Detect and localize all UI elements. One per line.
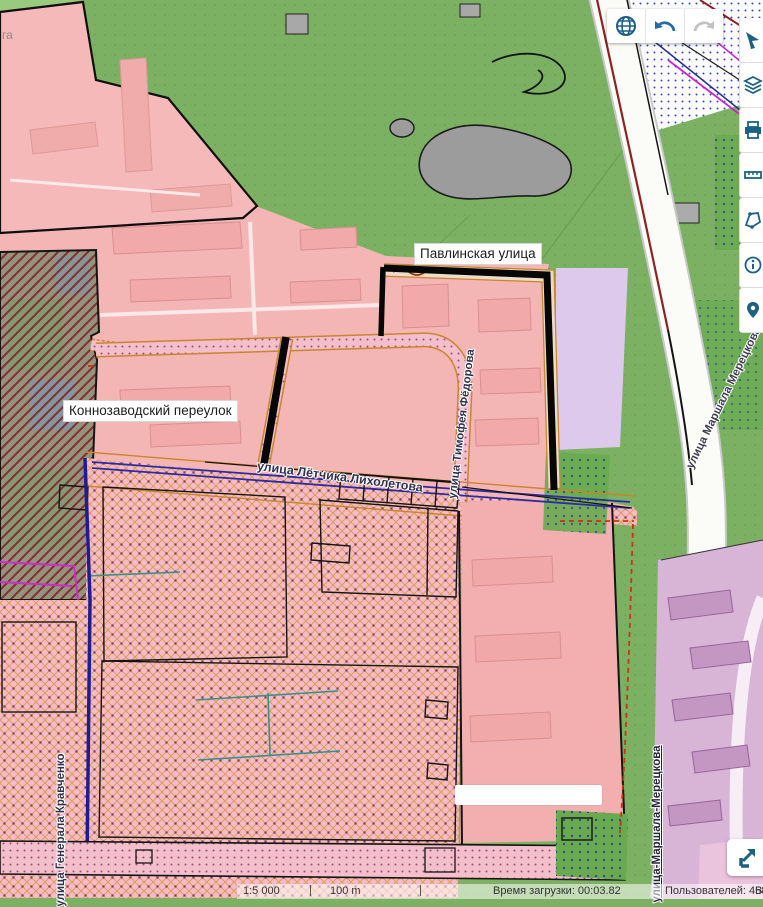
undo-icon — [652, 15, 678, 37]
tools-sidebar — [739, 18, 763, 333]
status-bar: 1:5 000 100 m Время загрузки: 00:03.82 П… — [237, 884, 763, 899]
globe-icon — [614, 14, 638, 38]
scale-bar-distance: 100 m — [330, 885, 361, 897]
app-root: { "map": { "labels": { "pavlinskaya": "П… — [0, 0, 763, 899]
map-toolbar — [607, 9, 723, 43]
cursor-arrow-icon — [743, 30, 763, 50]
undo-button[interactable] — [645, 9, 684, 43]
redo-button[interactable] — [684, 9, 723, 43]
status-fragment: В — [755, 885, 762, 897]
map-scale: 1:5 000 — [243, 885, 280, 897]
map-svg — [0, 0, 763, 899]
label-pavlinskaya-street: Павлинская улица — [414, 243, 542, 265]
street-name-fragment: га — [2, 28, 13, 42]
fullscreen-button[interactable] — [727, 839, 763, 876]
ruler-tool-button[interactable] — [739, 153, 763, 198]
redo-icon — [691, 15, 717, 37]
layers-icon — [743, 75, 763, 95]
marker-tool-button[interactable] — [739, 288, 763, 333]
draw-tool-button[interactable] — [739, 198, 763, 243]
marker-icon — [743, 300, 763, 320]
street-name-meretskova-bottom: улица-Маршала-Мерецкова — [651, 745, 663, 902]
users-count: Пользователей: 4584 — [665, 885, 763, 897]
expand-icon — [733, 845, 759, 871]
print-icon — [743, 120, 763, 140]
globe-button[interactable] — [607, 9, 645, 43]
street-name-kravchenko: улица Генерала Кравченко — [55, 753, 67, 906]
scale-bar-tick — [420, 885, 421, 896]
map-canvas[interactable] — [0, 0, 763, 899]
load-time: Время загрузки: 00:03.82 — [493, 885, 621, 897]
print-tool-button[interactable] — [739, 108, 763, 153]
empty-annotation-box[interactable] — [455, 785, 602, 805]
draw-polygon-icon — [743, 210, 763, 230]
info-icon — [743, 255, 763, 275]
info-tool-button[interactable] — [739, 243, 763, 288]
scale-bar-tick — [310, 885, 311, 896]
label-konnozavodsky-lane: Коннозаводский переулок — [63, 400, 238, 422]
cursor-tool-button[interactable] — [739, 18, 763, 63]
layers-tool-button[interactable] — [739, 63, 763, 108]
ruler-icon — [743, 165, 763, 185]
